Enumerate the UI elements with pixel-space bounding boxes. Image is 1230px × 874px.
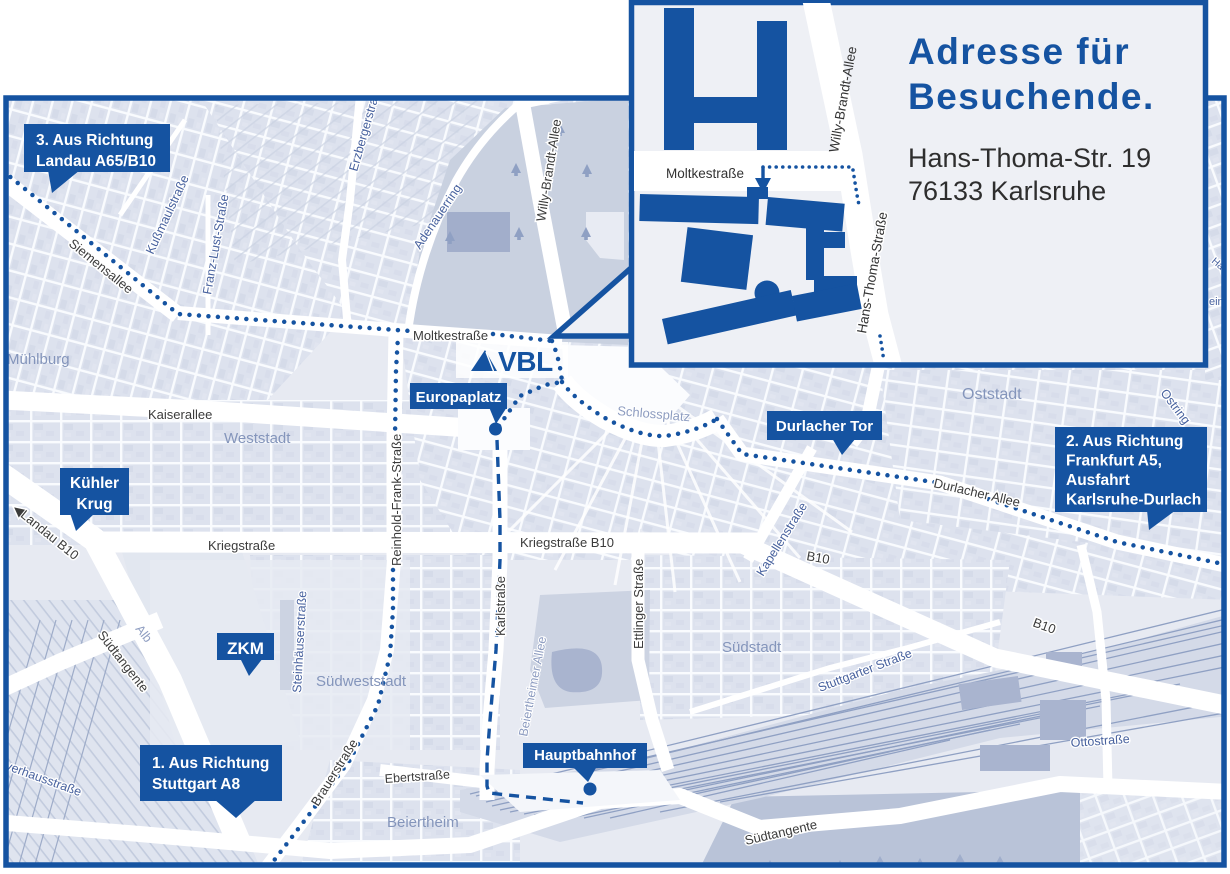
svg-text:Karlsruhe-Durlach: Karlsruhe-Durlach: [1066, 492, 1201, 509]
svg-text:Kriegstraße B10: Kriegstraße B10: [520, 535, 614, 550]
svg-text:Besuchende.: Besuchende.: [908, 76, 1155, 117]
svg-text:Moltkestraße: Moltkestraße: [413, 328, 488, 343]
svg-text:Frankfurt A5,: Frankfurt A5,: [1066, 453, 1162, 470]
svg-text:Kaiserallee: Kaiserallee: [148, 407, 212, 422]
svg-text:Stuttgart A8: Stuttgart A8: [152, 776, 240, 793]
svg-text:Kühler: Kühler: [70, 475, 119, 492]
svg-text:Adresse für: Adresse für: [908, 31, 1130, 72]
svg-text:Ausfahrt: Ausfahrt: [1066, 472, 1130, 489]
svg-text:Hauptbahnhof: Hauptbahnhof: [534, 747, 637, 764]
svg-text:VBL: VBL: [498, 346, 553, 377]
svg-text:Kriegstraße: Kriegstraße: [208, 538, 275, 553]
svg-text:Ettlinger Straße: Ettlinger Straße: [631, 559, 646, 649]
svg-text:Europaplatz: Europaplatz: [416, 389, 502, 406]
svg-text:76133 Karlsruhe: 76133 Karlsruhe: [908, 176, 1106, 206]
svg-text:Landau A65/B10: Landau A65/B10: [36, 153, 156, 170]
svg-text:Südweststadt: Südweststadt: [316, 673, 407, 690]
svg-text:Moltkestraße: Moltkestraße: [666, 166, 744, 181]
svg-text:Beiertheim: Beiertheim: [387, 814, 459, 831]
svg-text:Hans-Thoma-Str. 19: Hans-Thoma-Str. 19: [908, 143, 1151, 173]
svg-text:Südstadt: Südstadt: [722, 639, 782, 656]
svg-text:2. Aus Richtung: 2. Aus Richtung: [1066, 433, 1183, 450]
svg-text:Karlstraße: Karlstraße: [493, 576, 508, 636]
svg-text:ZKM: ZKM: [227, 639, 264, 658]
svg-text:Weststadt: Weststadt: [224, 430, 291, 447]
svg-text:Krug: Krug: [76, 496, 112, 513]
svg-text:Durlacher Tor: Durlacher Tor: [776, 418, 873, 435]
svg-text:1. Aus Richtung: 1. Aus Richtung: [152, 755, 269, 772]
svg-text:Reinhold-Frank-Straße: Reinhold-Frank-Straße: [389, 434, 404, 566]
svg-text:3. Aus Richtung: 3. Aus Richtung: [36, 132, 153, 149]
svg-text:Mühlburg: Mühlburg: [7, 351, 70, 368]
svg-text:Oststadt: Oststadt: [962, 386, 1022, 403]
